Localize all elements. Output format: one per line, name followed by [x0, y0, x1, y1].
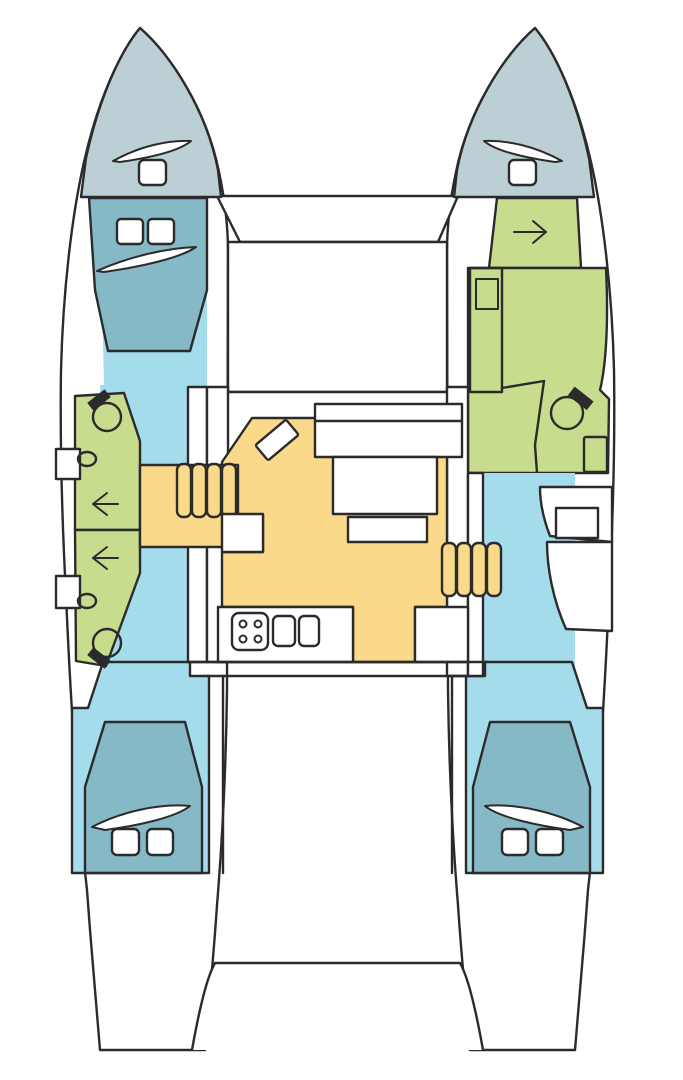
port-aft-berth: [85, 722, 202, 873]
step: [457, 543, 471, 596]
aft-platform: [192, 963, 483, 1050]
step: [472, 543, 486, 596]
deck-hatch-icon: [509, 160, 536, 185]
head-floor: [75, 393, 140, 530]
berth-pillow: [117, 219, 143, 244]
starboard-forepeak: [454, 28, 594, 197]
step: [487, 543, 501, 596]
berth-pillow: [148, 219, 174, 244]
port-forward-berth: [89, 198, 207, 351]
berth-mattress: [473, 722, 590, 873]
berth-pillow: [536, 829, 563, 855]
berth-pillow: [502, 829, 528, 855]
forward-cockpit: [228, 242, 447, 392]
step: [207, 464, 221, 517]
foredeck: [217, 196, 458, 242]
berth-pillow: [147, 829, 173, 855]
port-forepeak: [81, 28, 221, 197]
step: [177, 464, 191, 517]
companionway-steps-port: [177, 464, 236, 517]
salon-bench: [348, 517, 427, 542]
step: [222, 464, 236, 517]
salon-table: [333, 457, 437, 514]
catamaran-floor-plan: Catamaran interior floor plan (top view): [0, 0, 683, 1080]
starboard-head-suite: [468, 268, 609, 473]
step: [442, 543, 456, 596]
companionway-steps-starboard: [442, 543, 501, 596]
step: [192, 464, 206, 517]
vanity-counter: [56, 449, 80, 479]
berth-pillow: [112, 829, 139, 855]
starboard-aft-berth: [473, 722, 590, 873]
galley: [218, 607, 353, 662]
deck-hatch-icon: [139, 160, 166, 185]
galley-cabinet: [222, 514, 263, 552]
salon-seating: [315, 404, 462, 457]
berth-mattress: [85, 722, 202, 873]
aft-locker: [415, 607, 468, 662]
desk-top: [556, 508, 598, 538]
head-floor: [468, 268, 609, 473]
floor-plan-svg: [0, 0, 683, 1080]
starboard-entry: [489, 198, 581, 268]
vanity-counter: [56, 576, 80, 608]
